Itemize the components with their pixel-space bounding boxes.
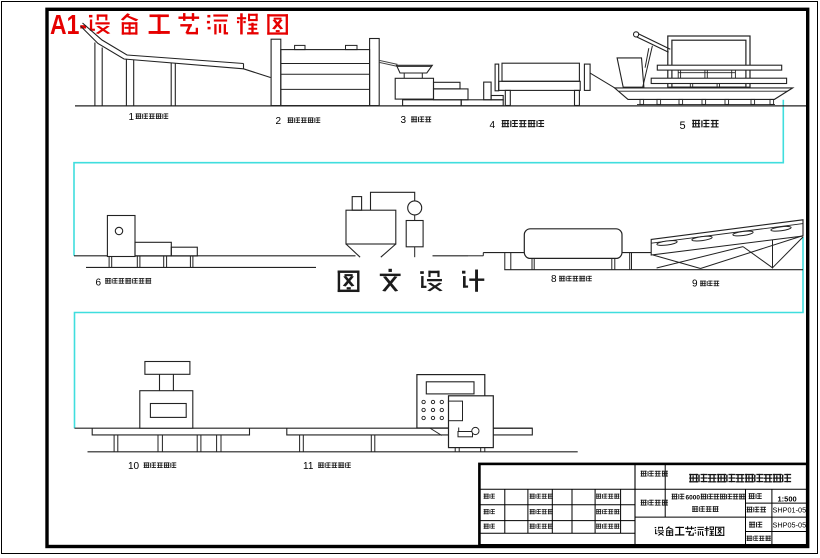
svg-text:1: 1 — [129, 112, 135, 123]
svg-text:6000: 6000 — [686, 494, 701, 501]
svg-text:A1-: A1- — [50, 9, 87, 40]
svg-text:SHP05-05: SHP05-05 — [773, 521, 807, 530]
svg-text:1:500: 1:500 — [778, 495, 797, 504]
svg-text:4: 4 — [490, 120, 496, 131]
svg-text:9: 9 — [692, 279, 698, 290]
svg-text:6: 6 — [96, 277, 102, 288]
svg-text:SHP01-05: SHP01-05 — [773, 506, 807, 515]
svg-text:5: 5 — [680, 120, 686, 132]
svg-text:2: 2 — [276, 116, 282, 127]
svg-text:3: 3 — [401, 115, 407, 126]
svg-text:11: 11 — [303, 461, 314, 472]
svg-text:8: 8 — [551, 274, 557, 285]
svg-text:10: 10 — [128, 461, 140, 472]
